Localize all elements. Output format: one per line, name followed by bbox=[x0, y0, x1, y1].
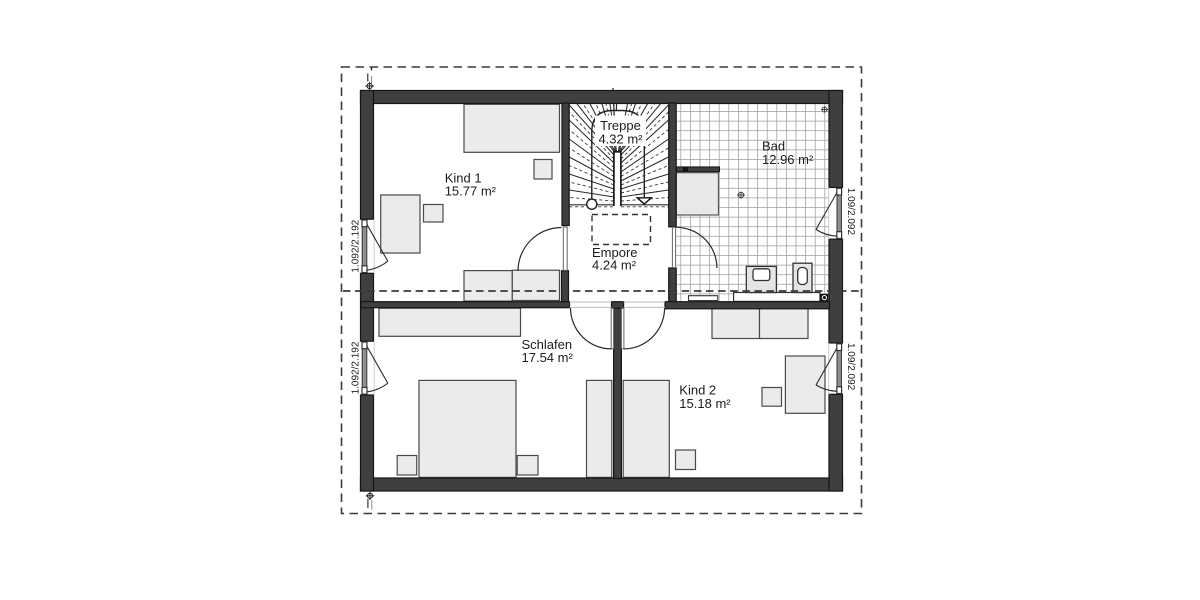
svg-text:1.09/2.092: 1.09/2.092 bbox=[845, 188, 856, 236]
svg-text:4.24 m²: 4.24 m² bbox=[592, 258, 637, 273]
svg-text:1.092/2.192: 1.092/2.192 bbox=[351, 219, 362, 272]
svg-text:4.32 m²: 4.32 m² bbox=[598, 131, 643, 146]
svg-text:15.18 m²: 15.18 m² bbox=[679, 396, 731, 411]
svg-text:12.96 m²: 12.96 m² bbox=[762, 152, 814, 167]
svg-text:15.77 m²: 15.77 m² bbox=[445, 184, 497, 199]
svg-text:1.092/2.192: 1.092/2.192 bbox=[351, 341, 362, 394]
svg-text:1.09/2.092: 1.09/2.092 bbox=[845, 343, 856, 391]
svg-text:17.54 m²: 17.54 m² bbox=[522, 350, 574, 365]
